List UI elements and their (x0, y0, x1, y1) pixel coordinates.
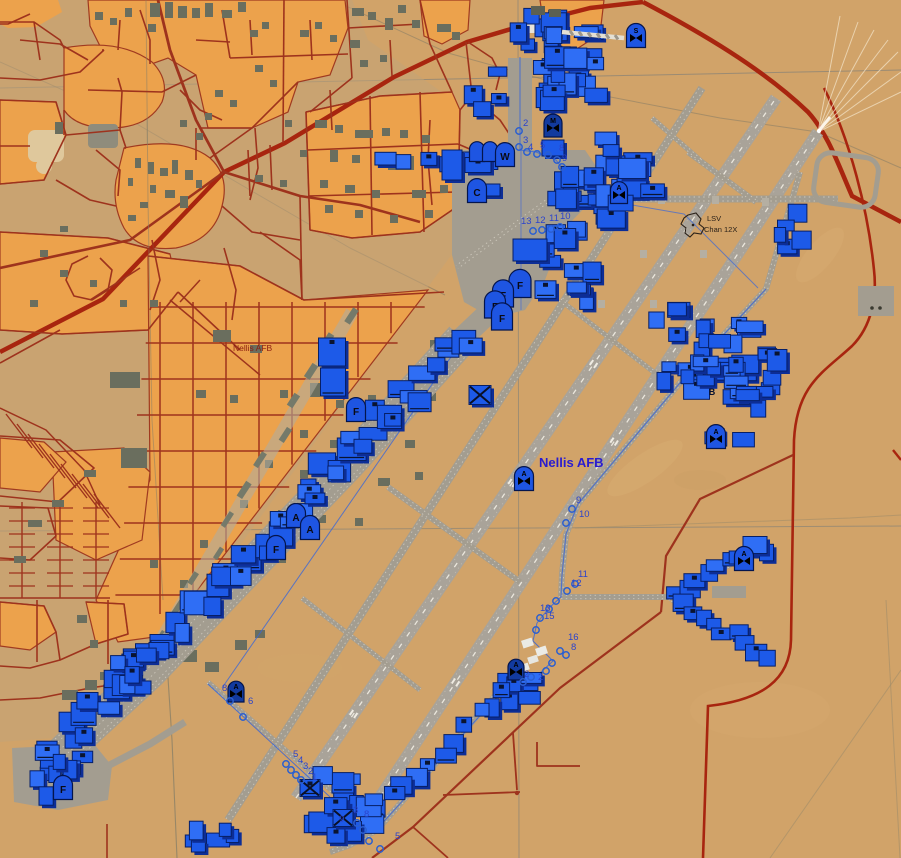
svg-text:M: M (550, 118, 556, 125)
svg-text:8: 8 (364, 809, 369, 820)
svg-text:F: F (353, 407, 359, 418)
svg-text:2: 2 (524, 669, 529, 680)
svg-text:6: 6 (248, 696, 253, 707)
svg-text:A: A (713, 429, 718, 436)
svg-text:15: 15 (544, 611, 555, 622)
svg-text:5: 5 (395, 831, 400, 842)
svg-text:3: 3 (353, 805, 358, 816)
svg-text:1: 1 (312, 772, 317, 783)
svg-text:A: A (233, 684, 238, 691)
svg-text:A: A (741, 551, 746, 558)
svg-text:9: 9 (562, 153, 567, 164)
svg-text:9: 9 (339, 814, 344, 825)
svg-text:LSV: LSV (707, 214, 721, 223)
svg-text:A: A (521, 471, 526, 478)
svg-text:9: 9 (576, 495, 581, 506)
svg-text:10: 10 (560, 211, 571, 222)
svg-text:2: 2 (523, 118, 528, 129)
svg-text:10: 10 (579, 509, 590, 520)
svg-text:8: 8 (571, 642, 576, 653)
svg-text:Nellis AFB: Nellis AFB (539, 455, 604, 470)
svg-text:W: W (500, 152, 510, 163)
svg-text:Nellis AFB: Nellis AFB (233, 343, 273, 353)
svg-text:F: F (517, 281, 523, 292)
svg-text:4: 4 (528, 142, 533, 153)
svg-text:5: 5 (540, 140, 545, 151)
svg-text:12: 12 (535, 215, 546, 226)
svg-text:C: C (473, 188, 480, 199)
svg-text:A: A (616, 185, 621, 192)
svg-text:S: S (634, 28, 639, 35)
svg-text:12: 12 (571, 578, 582, 589)
svg-text:2: 2 (538, 672, 543, 683)
svg-text:13: 13 (521, 216, 532, 227)
svg-text:F: F (499, 314, 505, 325)
svg-text:Chan 12X: Chan 12X (704, 225, 737, 234)
svg-text:F: F (60, 785, 66, 796)
svg-text:A: A (292, 513, 299, 524)
svg-text:B: B (709, 387, 716, 397)
svg-text:A: A (306, 525, 313, 536)
svg-text:8: 8 (222, 683, 227, 694)
svg-text:11: 11 (549, 213, 559, 224)
svg-text:A: A (513, 662, 518, 669)
svg-text:F: F (273, 545, 279, 556)
